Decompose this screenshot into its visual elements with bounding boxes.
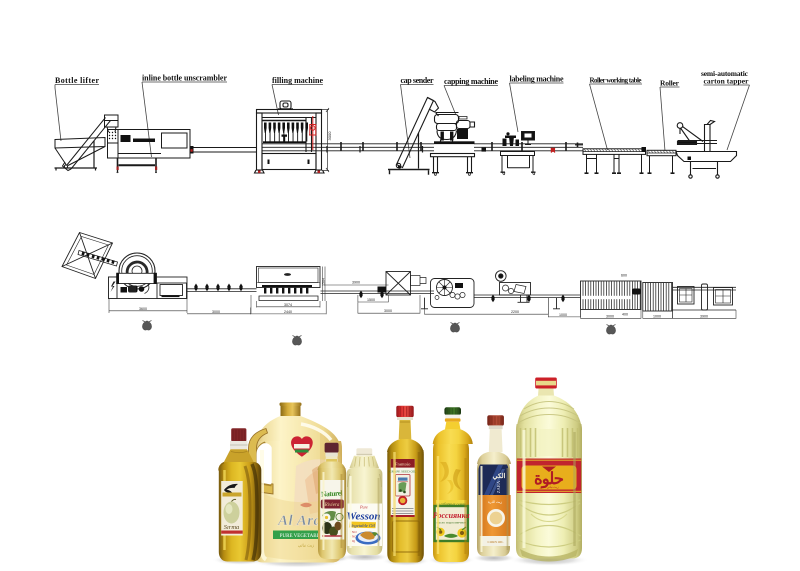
svg-text:labeling machine: labeling machine (510, 75, 564, 84)
svg-text:3000: 3000 (606, 314, 614, 318)
svg-text:زيت الذرة: زيت الذرة (488, 500, 502, 504)
svg-text:ZARA: ZARA (496, 480, 501, 493)
svg-text:الكي: الكي (493, 472, 506, 481)
svg-text:1504: 1504 (322, 278, 326, 286)
svg-text:carton tapper: carton tapper (704, 77, 750, 86)
svg-text:3000: 3000 (212, 310, 220, 314)
svg-text:3074: 3074 (284, 303, 292, 307)
svg-text:Frantoio: Frantoio (395, 461, 411, 466)
svg-text:3000: 3000 (327, 131, 332, 141)
svg-text:масло подсолнечное: масло подсолнечное (437, 521, 467, 525)
svg-text:3600: 3600 (139, 307, 147, 311)
svg-text:filling machine: filling machine (272, 76, 323, 85)
svg-text:3900: 3900 (352, 281, 360, 285)
svg-text:3000: 3000 (384, 309, 392, 313)
svg-text:زيت نباتي: زيت نباتي (298, 543, 314, 548)
svg-text:Riviera: Riviera (324, 503, 340, 508)
svg-text:Roller working table: Roller working table (590, 77, 642, 85)
svg-text:Pure: Pure (359, 505, 368, 510)
svg-text:Sırma: Sırma (224, 524, 240, 531)
svg-text:2200: 2200 (511, 310, 519, 314)
svg-text:cap sender: cap sender (401, 76, 434, 85)
svg-text:600: 600 (621, 274, 627, 278)
svg-text:زيت نباتي مكرر: زيت نباتي مكرر (538, 485, 559, 489)
svg-text:1000: 1000 (559, 313, 567, 317)
svg-text:capping machine: capping machine (444, 77, 498, 86)
svg-text:1500: 1500 (367, 298, 375, 302)
svg-text:Vegetable Oil: Vegetable Oil (350, 523, 376, 528)
svg-text:inline bottle unscrambler: inline bottle unscrambler (142, 74, 227, 83)
svg-text:3900: 3900 (700, 314, 708, 318)
svg-text:1000: 1000 (653, 314, 661, 318)
svg-text:Bottle lifter: Bottle lifter (55, 76, 99, 85)
svg-text:2440: 2440 (284, 310, 292, 314)
svg-text:CORN OIL: CORN OIL (488, 540, 504, 544)
svg-text:400: 400 (622, 313, 628, 317)
svg-text:Roller: Roller (660, 79, 680, 88)
